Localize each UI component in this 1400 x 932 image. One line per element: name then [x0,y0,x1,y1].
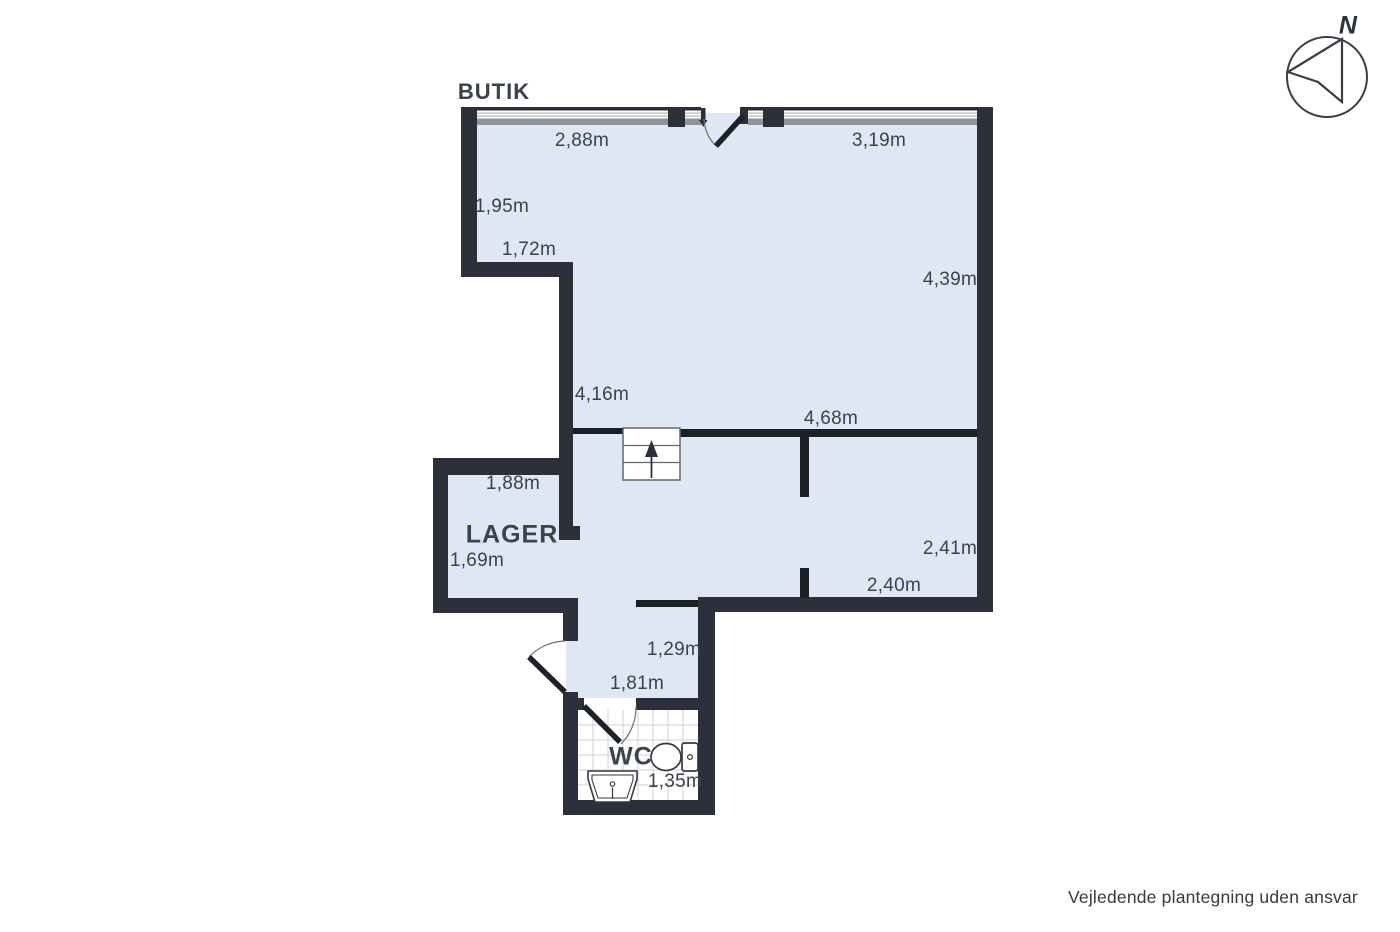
entrance-door-swing [529,641,565,692]
measurement-label: 1,88m [486,473,540,495]
floor-plan-page: BUTIK LAGER WC 2,88m 3,19m 1,95m 1,72m 4… [0,0,1400,932]
disclaimer-text: Vejledende plantegning uden ansvar [1068,887,1358,908]
measurement-label: 1,72m [502,239,556,261]
room-label-lager: LAGER [466,521,559,550]
measurement-label: 2,88m [555,130,609,152]
measurement-label: 1,35m [648,771,702,793]
staircase-up-arrow [623,428,680,480]
toilet-icon [651,743,698,771]
measurement-label: 1,29m [647,639,701,661]
north-arrow-compass [1287,37,1367,117]
measurement-label: 2,41m [923,538,977,560]
sink-icon [588,771,637,802]
room-label-wc: WC [609,743,653,772]
room-label-butik: BUTIK [458,79,530,105]
measurement-label: 4,68m [804,408,858,430]
measurement-label: 4,39m [923,269,977,291]
compass-north-label: N [1339,12,1357,41]
measurement-label: 4,16m [575,384,629,406]
measurement-label: 2,40m [867,575,921,597]
measurement-label: 1,69m [450,550,504,572]
measurement-label: 3,19m [852,130,906,152]
measurement-label: 1,81m [610,673,664,695]
measurement-label: 1,95m [475,196,529,218]
